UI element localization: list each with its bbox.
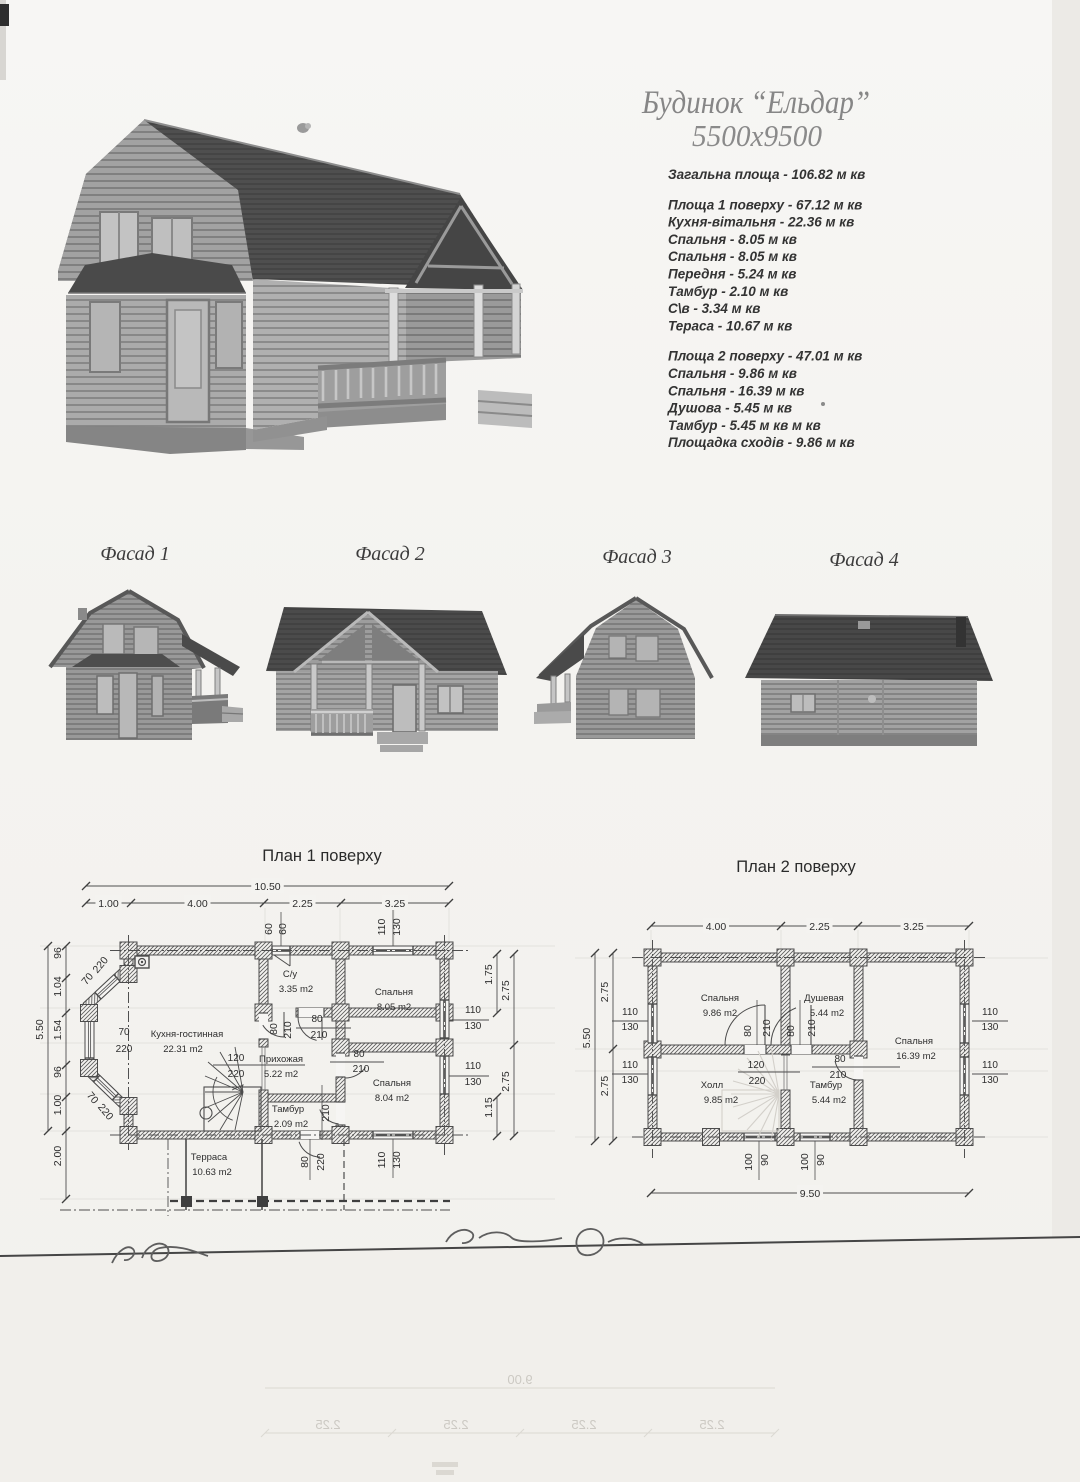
svg-text:1.75: 1.75 bbox=[483, 964, 495, 985]
svg-text:9.85 m2: 9.85 m2 bbox=[704, 1095, 738, 1106]
svg-text:Тамбур: Тамбур bbox=[272, 1104, 304, 1115]
svg-text:60: 60 bbox=[263, 923, 275, 935]
svg-text:2.75: 2.75 bbox=[599, 982, 611, 1003]
svg-text:Спальня - 8.05 м кв: Спальня - 8.05 м кв bbox=[668, 232, 797, 247]
svg-text:2.25: 2.25 bbox=[571, 1417, 596, 1432]
svg-text:Спальня - 16.39 м кв: Спальня - 16.39 м кв bbox=[668, 383, 804, 398]
svg-text:96: 96 bbox=[52, 947, 64, 959]
svg-text:Тамбур: Тамбур bbox=[810, 1080, 842, 1091]
svg-text:220: 220 bbox=[315, 1153, 327, 1171]
svg-text:Площадка сходів - 9.86 м кв: Площадка сходів - 9.86 м кв bbox=[668, 435, 855, 450]
svg-text:3.35 m2: 3.35 m2 bbox=[279, 984, 313, 995]
svg-text:5.44 m2: 5.44 m2 bbox=[810, 1008, 844, 1019]
svg-text:1.04: 1.04 bbox=[52, 976, 64, 997]
svg-text:80: 80 bbox=[299, 1156, 311, 1168]
svg-text:210: 210 bbox=[282, 1021, 294, 1039]
svg-text:Будинок “Ельдар”: Будинок “Ельдар” bbox=[641, 85, 870, 121]
svg-text:2.09 m2: 2.09 m2 bbox=[274, 1119, 308, 1130]
svg-text:Прихожая: Прихожая bbox=[259, 1054, 303, 1065]
svg-text:80: 80 bbox=[785, 1025, 797, 1037]
svg-text:110: 110 bbox=[465, 1005, 481, 1016]
svg-text:210: 210 bbox=[311, 1030, 328, 1041]
svg-text:110: 110 bbox=[465, 1061, 481, 1072]
svg-text:110: 110 bbox=[982, 1060, 998, 1071]
svg-text:80: 80 bbox=[742, 1025, 754, 1037]
svg-text:210: 210 bbox=[830, 1070, 847, 1081]
svg-text:Спальня: Спальня bbox=[373, 1078, 411, 1089]
svg-text:2.75: 2.75 bbox=[599, 1076, 611, 1097]
svg-text:Спальня: Спальня bbox=[895, 1036, 933, 1047]
svg-text:5.50: 5.50 bbox=[34, 1019, 46, 1040]
svg-text:96: 96 bbox=[52, 1066, 64, 1078]
svg-text:130: 130 bbox=[622, 1022, 639, 1033]
svg-text:8.05 m2: 8.05 m2 bbox=[377, 1002, 411, 1013]
svg-text:130: 130 bbox=[622, 1075, 639, 1086]
svg-text:Фасад 4: Фасад 4 bbox=[829, 549, 899, 571]
svg-text:110: 110 bbox=[982, 1007, 998, 1018]
svg-text:Кухня-вітальня - 22.36 м кв: Кухня-вітальня - 22.36 м кв bbox=[668, 215, 854, 230]
svg-text:9.50: 9.50 bbox=[800, 1188, 821, 1200]
svg-text:220: 220 bbox=[749, 1076, 766, 1087]
svg-text:Тамбур - 2.10 м кв: Тамбур - 2.10 м кв bbox=[668, 284, 788, 299]
svg-text:110: 110 bbox=[622, 1007, 638, 1018]
svg-text:2.75: 2.75 bbox=[500, 980, 512, 1001]
svg-text:110: 110 bbox=[376, 918, 388, 935]
svg-text:План 1 поверху: План 1 поверху bbox=[262, 847, 382, 865]
svg-text:Терраса: Терраса bbox=[191, 1152, 228, 1163]
svg-text:130: 130 bbox=[982, 1022, 999, 1033]
svg-text:Загальна площа - 106.82 м кв: Загальна площа - 106.82 м кв bbox=[668, 167, 865, 182]
svg-text:1.54: 1.54 bbox=[52, 1020, 64, 1041]
svg-text:План 2 поверху: План 2 поверху bbox=[736, 858, 856, 876]
svg-text:210: 210 bbox=[806, 1019, 818, 1037]
svg-text:100: 100 bbox=[799, 1153, 811, 1171]
svg-text:9.86 m2: 9.86 m2 bbox=[703, 1008, 737, 1019]
svg-text:22.31 m2: 22.31 m2 bbox=[163, 1044, 203, 1055]
svg-text:130: 130 bbox=[465, 1077, 482, 1088]
svg-text:2.25: 2.25 bbox=[809, 921, 830, 933]
svg-text:Фасад 2: Фасад 2 bbox=[355, 543, 425, 565]
svg-text:Передня - 5.24 м кв: Передня - 5.24 м кв bbox=[668, 267, 796, 282]
svg-text:10.63 m2: 10.63 m2 bbox=[192, 1167, 232, 1178]
svg-text:Площа 1 поверху - 67.12 м кв: Площа 1 поверху - 67.12 м кв bbox=[668, 197, 862, 212]
svg-text:80: 80 bbox=[834, 1054, 846, 1065]
svg-text:90: 90 bbox=[759, 1154, 771, 1166]
svg-text:4.00: 4.00 bbox=[187, 898, 208, 910]
svg-text:10.50: 10.50 bbox=[254, 881, 280, 893]
svg-text:120: 120 bbox=[228, 1053, 245, 1064]
svg-text:1.00: 1.00 bbox=[98, 898, 119, 910]
svg-text:80: 80 bbox=[311, 1014, 323, 1025]
svg-text:С/у: С/у bbox=[283, 969, 298, 980]
svg-text:2.75: 2.75 bbox=[500, 1071, 512, 1092]
svg-text:60: 60 bbox=[277, 923, 289, 935]
svg-text:80: 80 bbox=[353, 1049, 365, 1060]
svg-text:2.25: 2.25 bbox=[292, 898, 313, 910]
svg-text:3.25: 3.25 bbox=[903, 921, 924, 933]
svg-text:Фасад 3: Фасад 3 bbox=[602, 546, 672, 568]
svg-text:1.00: 1.00 bbox=[52, 1095, 64, 1116]
svg-text:5.50: 5.50 bbox=[581, 1028, 593, 1049]
svg-text:130: 130 bbox=[982, 1075, 999, 1086]
svg-text:16.39 m2: 16.39 m2 bbox=[896, 1051, 936, 1062]
svg-text:90: 90 bbox=[815, 1154, 827, 1166]
svg-text:Душова - 5.45 м кв: Душова - 5.45 м кв bbox=[667, 401, 792, 416]
svg-text:2.25: 2.25 bbox=[315, 1417, 340, 1432]
svg-text:Площа 2 поверху - 47.01 м кв: Площа 2 поверху - 47.01 м кв bbox=[668, 349, 862, 364]
svg-text:120: 120 bbox=[748, 1060, 765, 1071]
svg-text:Тамбур - 5.45 м кв м кв: Тамбур - 5.45 м кв м кв bbox=[668, 418, 821, 433]
svg-text:Спальня: Спальня bbox=[701, 993, 739, 1004]
svg-text:Спальня - 9.86 м кв: Спальня - 9.86 м кв bbox=[668, 366, 797, 381]
svg-text:210: 210 bbox=[761, 1019, 773, 1037]
svg-text:С\в - 3.34 м кв: С\в - 3.34 м кв bbox=[668, 301, 760, 316]
svg-text:Тераса - 10.67 м кв: Тераса - 10.67 м кв bbox=[668, 318, 792, 333]
svg-text:110: 110 bbox=[376, 1151, 388, 1168]
svg-text:Холл: Холл bbox=[701, 1080, 723, 1091]
svg-text:1.15: 1.15 bbox=[483, 1097, 495, 1118]
svg-text:2.00: 2.00 bbox=[52, 1146, 64, 1167]
svg-text:210: 210 bbox=[353, 1064, 370, 1075]
svg-text:5500х9500: 5500х9500 bbox=[692, 118, 822, 153]
svg-text:3.25: 3.25 bbox=[385, 898, 406, 910]
svg-text:2.25: 2.25 bbox=[699, 1417, 724, 1432]
svg-text:220: 220 bbox=[228, 1069, 245, 1080]
svg-text:130: 130 bbox=[465, 1021, 482, 1032]
svg-text:Спальня - 8.05 м кв: Спальня - 8.05 м кв bbox=[668, 249, 797, 264]
svg-text:4.00: 4.00 bbox=[706, 921, 727, 933]
svg-text:9.00: 9.00 bbox=[507, 1372, 532, 1387]
svg-text:80: 80 bbox=[268, 1023, 280, 1035]
svg-text:Душевая: Душевая bbox=[804, 993, 844, 1004]
svg-text:8.04 m2: 8.04 m2 bbox=[375, 1093, 409, 1104]
svg-text:Спальня: Спальня bbox=[375, 987, 413, 998]
svg-text:70: 70 bbox=[118, 1027, 130, 1038]
svg-text:Кухня-гостинная: Кухня-гостинная bbox=[151, 1029, 223, 1040]
svg-text:220: 220 bbox=[116, 1044, 133, 1055]
svg-text:110: 110 bbox=[622, 1060, 638, 1071]
svg-text:Фасад 1: Фасад 1 bbox=[100, 543, 170, 565]
svg-text:5.22 m2: 5.22 m2 bbox=[264, 1069, 298, 1080]
svg-text:100: 100 bbox=[743, 1153, 755, 1171]
svg-text:5.44 m2: 5.44 m2 bbox=[812, 1095, 846, 1106]
svg-text:2.25: 2.25 bbox=[443, 1417, 468, 1432]
